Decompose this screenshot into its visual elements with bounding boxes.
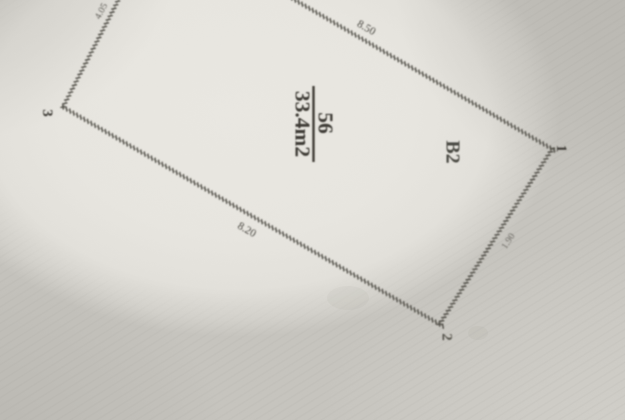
svg-text:56: 56 [314, 112, 338, 134]
svg-text:B2: B2 [442, 140, 464, 163]
svg-text:2: 2 [439, 333, 455, 341]
svg-text:3: 3 [39, 109, 55, 117]
svg-text:33.4m2: 33.4m2 [291, 91, 315, 157]
svg-text:1: 1 [553, 145, 569, 153]
